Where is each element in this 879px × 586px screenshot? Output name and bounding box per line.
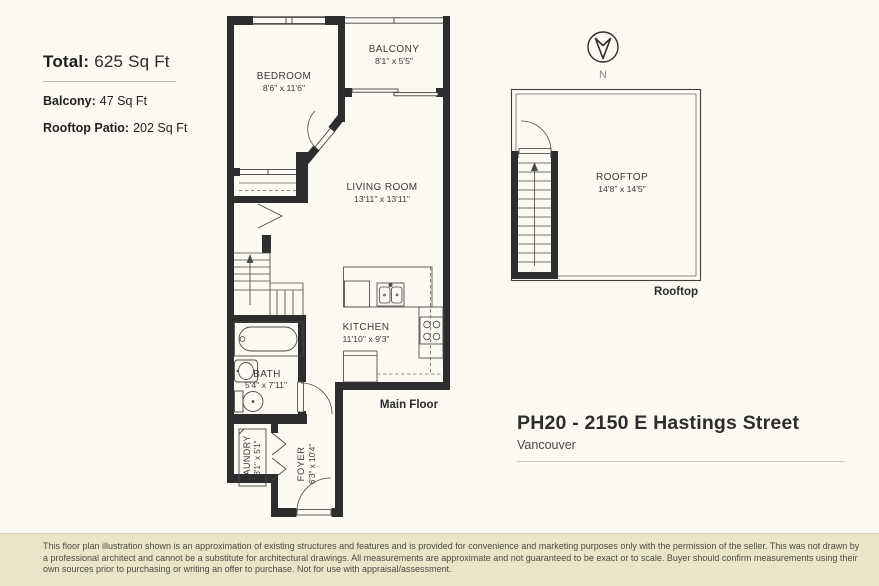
foyer-label: FOYER xyxy=(296,447,307,482)
stove xyxy=(420,317,443,344)
laundry-bifold-doors xyxy=(272,433,286,480)
rooftop-door xyxy=(519,121,552,159)
bedroom-door xyxy=(308,111,336,151)
disclaimer-text: This floor plan illustration shown is an… xyxy=(43,541,865,576)
balcony-railing xyxy=(345,18,443,23)
floorplan-page: Total:625 Sq Ft Balcony:47 Sq Ft Rooftop… xyxy=(0,0,879,586)
disclaimer-bar: This floor plan illustration shown is an… xyxy=(0,533,879,586)
main-staircase xyxy=(234,248,303,315)
compass: N xyxy=(588,32,618,81)
rooftop-caption: Rooftop xyxy=(654,286,698,298)
living-room-dims: 13'11" x 13'11" xyxy=(354,194,410,204)
balcony-sliding-door xyxy=(352,89,438,96)
north-arrow-icon xyxy=(596,39,611,59)
toilet xyxy=(235,391,264,412)
balcony-dims: 8'1" x 5'5" xyxy=(375,56,413,66)
bath-door xyxy=(298,382,332,414)
bedroom-dims: 8'6" x 11'6" xyxy=(263,83,305,93)
bathtub xyxy=(235,322,304,356)
floor-plan-drawing: N BEDROOM 8'6" x 11'6" BALCONY 8'1" x 5'… xyxy=(0,0,879,533)
rooftop-label: ROOFTOP xyxy=(596,172,648,183)
hall-closet-bifold-door xyxy=(258,204,282,228)
bedroom-label: BEDROOM xyxy=(257,71,311,82)
main-floor-caption: Main Floor xyxy=(380,399,439,411)
rooftop-dims: 14'8" x 14'5" xyxy=(598,184,646,194)
bath-dims: 5'4" x 7'11" xyxy=(245,380,287,390)
kitchen-dims: 11'10" x 9'3" xyxy=(343,334,390,344)
diagonal-wall-upper xyxy=(332,118,342,130)
stairs-up-arrow xyxy=(247,254,254,263)
bedroom-window xyxy=(253,17,325,25)
living-room-label: LIVING ROOM xyxy=(346,182,417,193)
kitchen-sink xyxy=(377,283,404,306)
balcony-label: BALCONY xyxy=(369,44,420,55)
bath-label: BATH xyxy=(253,369,281,380)
foyer-dims: 6'3" x 10'4" xyxy=(308,444,317,484)
laundry-dims: 3'1" x 5'1" xyxy=(253,440,262,475)
diagonal-wall-lower xyxy=(304,148,317,163)
bedroom-closet xyxy=(239,169,296,191)
compass-north-label: N xyxy=(599,69,607,81)
kitchen-label: KITCHEN xyxy=(343,322,390,333)
laundry-label: LAUNDRY xyxy=(242,435,252,481)
